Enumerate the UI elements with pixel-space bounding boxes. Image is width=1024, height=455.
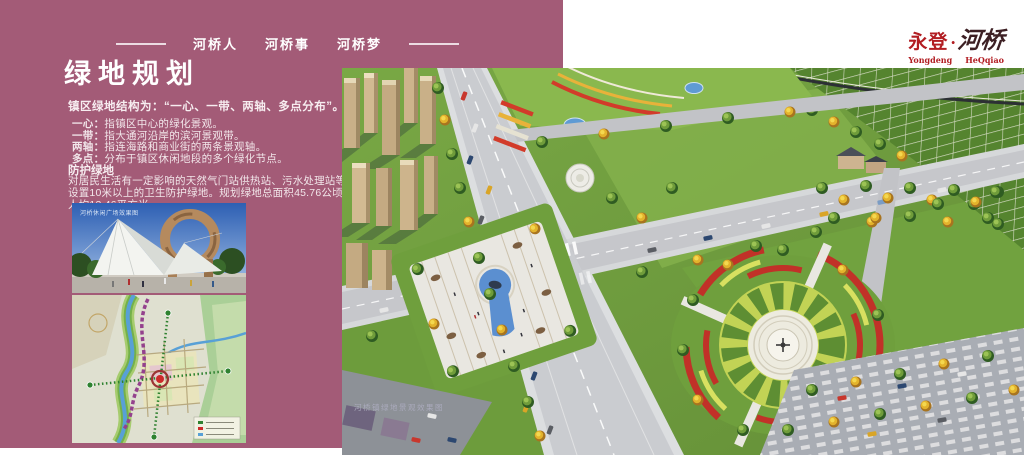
logo-chinese: 永登 · 河桥 <box>908 21 1004 55</box>
nav-dash-left <box>116 43 166 45</box>
brochure-nav: 河桥人 河桥事 河桥梦 <box>116 34 459 53</box>
nav-item-heqiao-meng: 河桥梦 <box>337 34 382 53</box>
logo-en-right: HeQqiao <box>965 55 1004 65</box>
planning-map-art <box>72 295 246 443</box>
planning-map-figure <box>72 295 246 443</box>
render-caption: 河桥镇绿地景观效果图 <box>354 402 444 413</box>
logo-cn-left: 永登 <box>908 27 948 54</box>
page-title: 绿地规划 <box>64 52 200 91</box>
green-structure-list: 一心：指镇区中心的绿化景观。 一带：指大通河沿岸的滨河景观带。 两轴：指连海路和… <box>72 119 288 165</box>
intro-text: 镇区绿地结构为：“一心、一带、两轴、多点分布”。 <box>68 98 345 114</box>
logo-english: Yongdeng HeQqiao <box>908 55 1004 65</box>
nav-item-heqiao-ren: 河桥人 <box>193 34 238 53</box>
small-plaza <box>566 164 594 192</box>
logo-en-left: Yongdeng <box>908 55 952 65</box>
aerial-render-figure: 河桥镇绿地景观效果图 <box>342 68 1024 455</box>
logo-dot: · <box>950 33 956 52</box>
photo-caption: 河桥休闲广场效果图 <box>80 208 139 217</box>
logo-cn-right: 河桥 <box>956 21 1006 55</box>
nav-dash-right <box>409 43 459 45</box>
aerial-render-art <box>342 68 1024 455</box>
plaza-photo-figure: 河桥休闲广场效果图 <box>72 203 246 293</box>
nav-item-heqiao-shi: 河桥事 <box>265 34 310 53</box>
brand-logo: 永登 · 河桥 Yongdeng HeQqiao <box>908 21 1004 65</box>
